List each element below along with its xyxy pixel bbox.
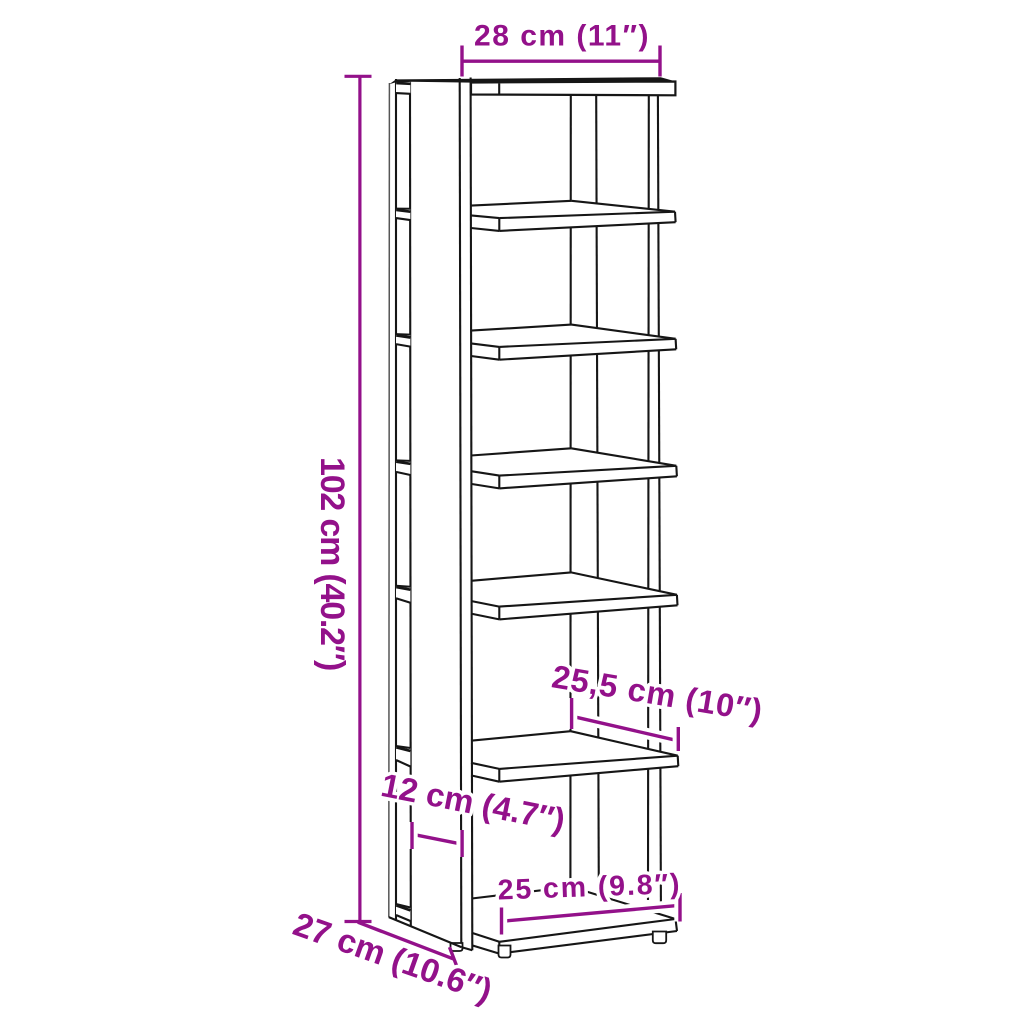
svg-text:28 cm (11″): 28 cm (11″) bbox=[474, 20, 650, 53]
svg-text:25 cm (9.8″): 25 cm (9.8″) bbox=[497, 868, 682, 906]
svg-text:102 cm (40.2″): 102 cm (40.2″) bbox=[313, 457, 351, 670]
